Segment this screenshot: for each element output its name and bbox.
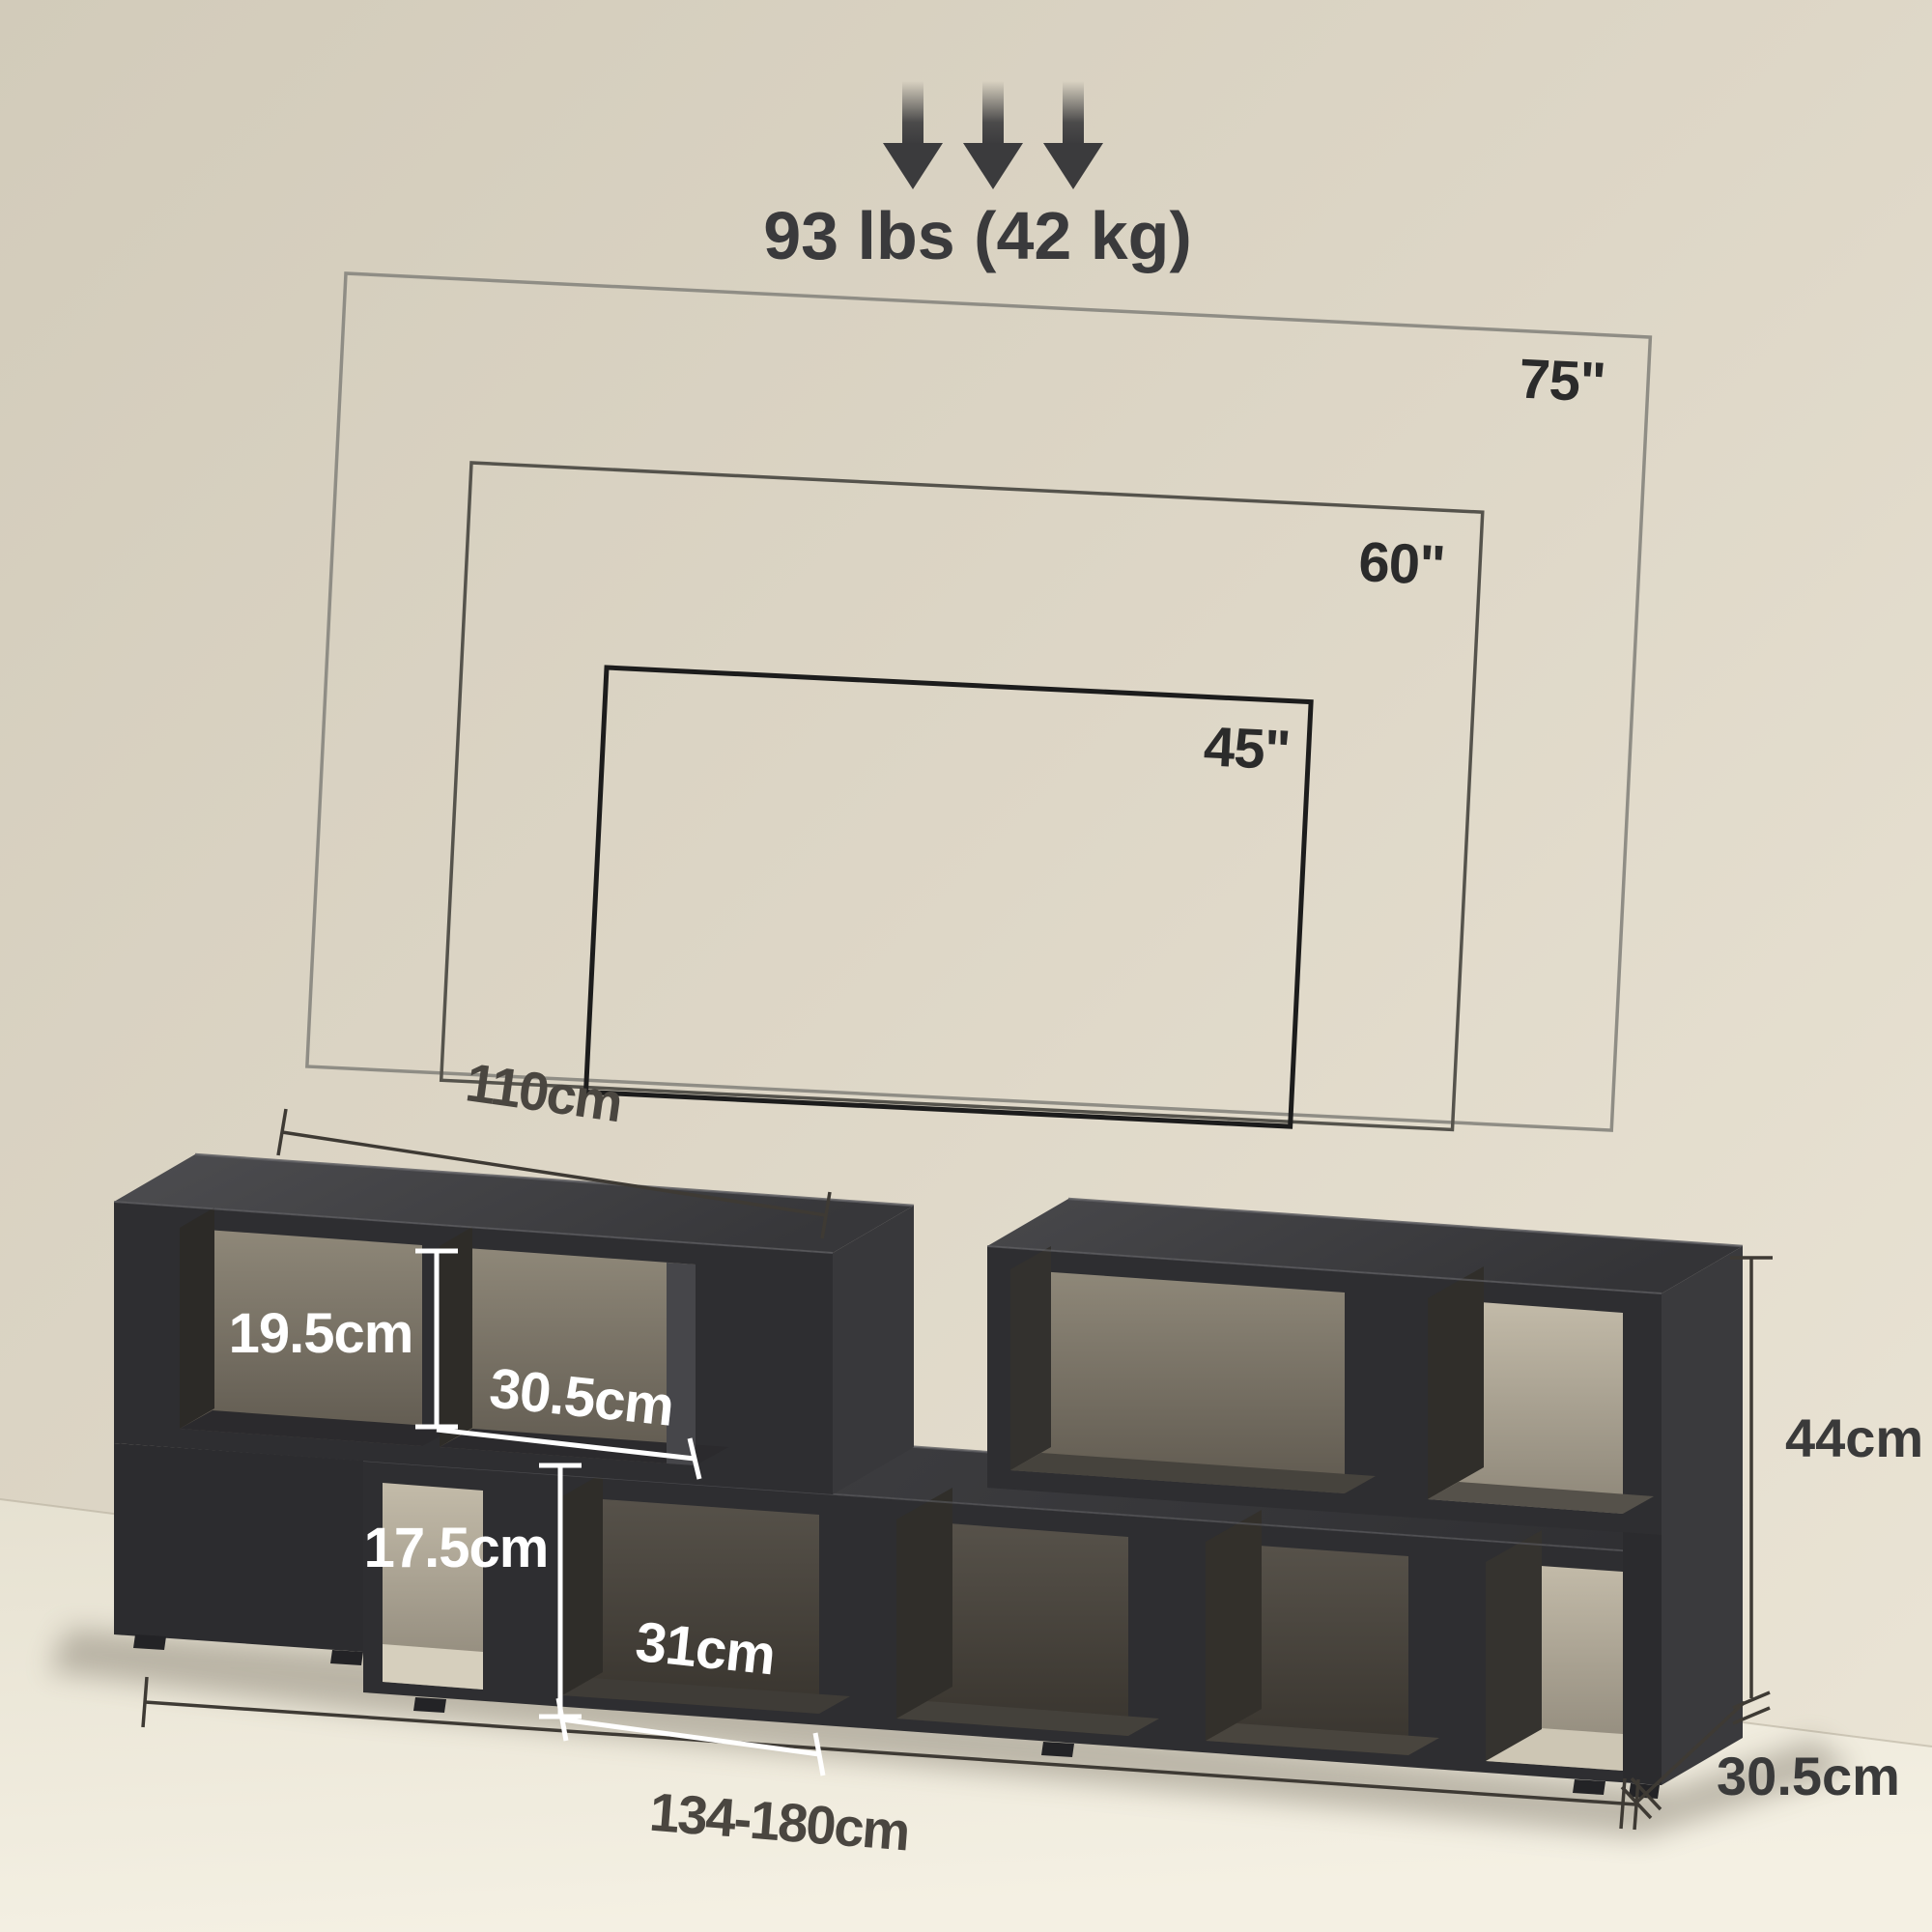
right-unit-leg-front	[1623, 1532, 1662, 1785]
lower-opening-c-side	[1206, 1510, 1262, 1741]
lower-opening-b-side	[896, 1488, 952, 1719]
lower-opening-a-side	[562, 1473, 603, 1695]
foot	[133, 1634, 166, 1650]
product-dimension-diagram: 75" 60" 45" 93 lbs (42 kg)	[0, 0, 1932, 1932]
right-unit-side-panel	[1662, 1246, 1743, 1785]
left-upper-opening-2-right-side	[667, 1263, 696, 1465]
dimension-overall-height-label: 44cm	[1785, 1407, 1923, 1468]
diagram-canvas: 75" 60" 45" 93 lbs (42 kg)	[0, 0, 1932, 1932]
tv-size-75-label: 75"	[1518, 348, 1606, 414]
lower-opening-left-floor	[383, 1644, 483, 1690]
tv-size-60-label: 60"	[1357, 530, 1446, 597]
foot	[1041, 1742, 1074, 1757]
left-upper-opening-1-side	[180, 1207, 214, 1429]
foot	[330, 1650, 363, 1665]
left-upper-opening-2-side	[440, 1227, 472, 1447]
lower-opening-d-side	[1486, 1530, 1542, 1761]
left-unit-end-panel-side	[833, 1206, 914, 1494]
dimension-lower-opening-height-label: 17.5cm	[364, 1517, 549, 1579]
dimension-overall-depth-label: 30.5cm	[1717, 1746, 1900, 1806]
weight-capacity-label: 93 lbs (42 kg)	[763, 198, 1192, 273]
foot	[1573, 1779, 1605, 1795]
right-upper-opening-1-side	[1010, 1246, 1051, 1470]
left-unit-leg	[114, 1443, 363, 1652]
right-upper-opening-2-side	[1428, 1266, 1484, 1499]
dimension-upper-opening-height-label: 19.5cm	[229, 1302, 413, 1365]
foot	[413, 1697, 446, 1713]
tv-size-45-label: 45"	[1203, 715, 1292, 781]
